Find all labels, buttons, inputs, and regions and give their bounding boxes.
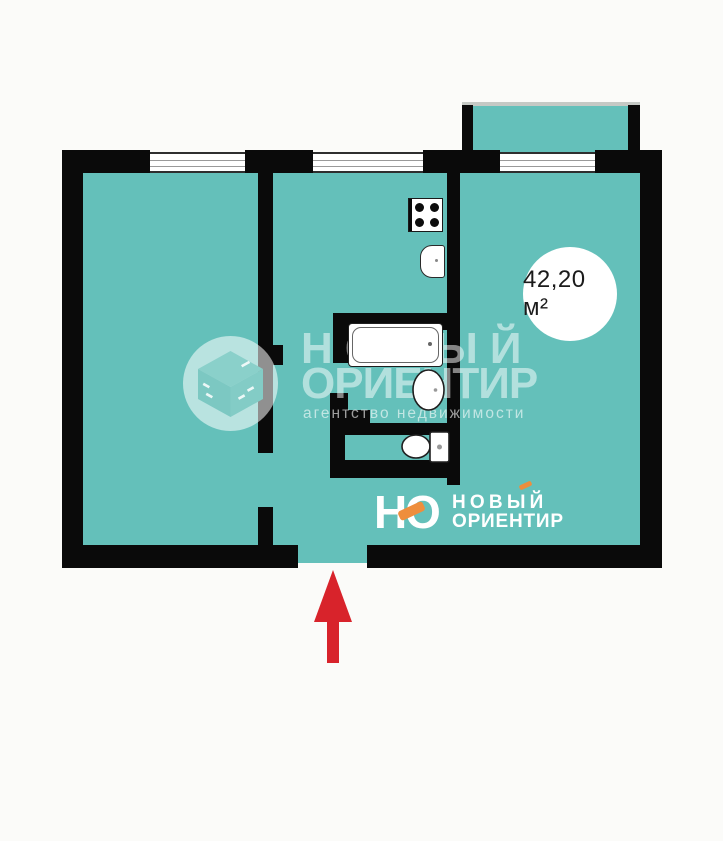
window-balcony-door [500, 152, 595, 173]
wall-top-segment-1 [62, 150, 150, 173]
wall-left-room-lower [258, 507, 273, 545]
wall-wc-left [330, 435, 345, 460]
stove-burner [415, 218, 424, 227]
wall-top-segment-3 [423, 150, 500, 173]
stove-burner [430, 218, 439, 227]
window-pane-line [150, 160, 245, 161]
wall-bottom-right-of-entrance [367, 545, 662, 568]
stove-icon [408, 198, 443, 232]
wall-outer-left [62, 150, 83, 568]
balcony-wall-right [628, 105, 640, 153]
area-badge: 42,20 м² [523, 247, 617, 341]
window-kitchen [313, 152, 423, 173]
sink-drain [435, 259, 438, 262]
wall-top-segment-2 [245, 150, 313, 173]
window-pane-line [313, 160, 423, 161]
logo-name-line1: НОВЫЙ [452, 493, 547, 512]
cube-in-circle-icon [183, 336, 278, 431]
bathtub-basin [352, 327, 439, 363]
wall-bottom-left-of-entrance [62, 545, 298, 568]
stove-burner [430, 203, 439, 212]
balcony-floor [473, 106, 628, 153]
window-pane-line [500, 166, 595, 167]
stove-burner [415, 203, 424, 212]
entrance-opening-floor [298, 545, 367, 563]
bathtub-drain [428, 342, 432, 346]
toilet-icon [397, 429, 453, 465]
balcony-edge-line [462, 102, 640, 106]
floorplan-canvas: НОВЫЙ ОРИЕНТИР агентство недвижимости 42… [0, 0, 723, 841]
area-label: 42,20 м² [523, 266, 617, 322]
washbasin-icon [412, 369, 445, 411]
wall-outer-right [640, 150, 662, 568]
bathtub-icon [348, 323, 443, 367]
window-pane-line [500, 160, 595, 161]
window-pane-line [150, 166, 245, 167]
stove-edge [409, 199, 412, 231]
kitchen-sink-icon [420, 245, 445, 278]
entrance-arrow-icon [311, 569, 357, 664]
window-left-room [150, 152, 245, 173]
logo-name-line2: ОРИЕНТИР [452, 512, 564, 531]
window-pane-line [313, 166, 423, 167]
balcony-wall-left [462, 105, 473, 153]
